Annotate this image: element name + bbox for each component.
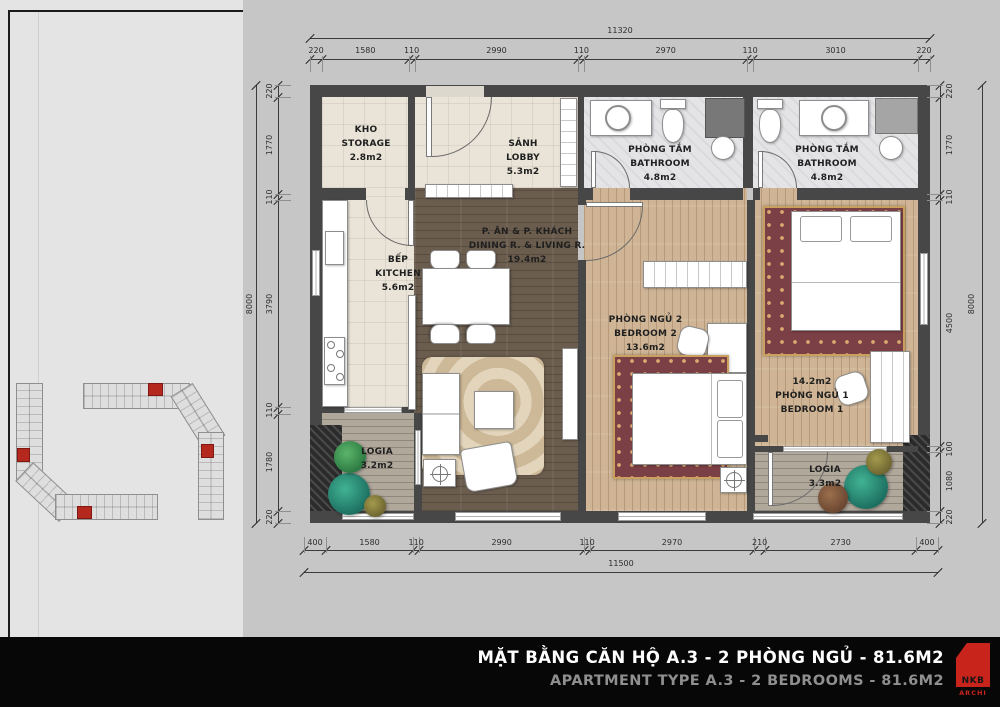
coffee-table [474, 391, 514, 429]
window-bedroom2 [618, 512, 706, 521]
wall-storage-right [408, 97, 415, 200]
unit-highlight [201, 444, 214, 458]
dim-label: 2970 [646, 46, 686, 56]
logo-shape: NKB [956, 643, 990, 687]
wardrobe [870, 351, 910, 443]
room-area: 3.3m2 [788, 477, 862, 491]
room-name-vi: KHO [324, 123, 408, 137]
dim-label: 8000 [967, 284, 977, 324]
sofa [422, 373, 460, 455]
dim-mark [278, 85, 279, 523]
wall-storage-bottom [322, 188, 366, 200]
sheet-inner-line [38, 12, 39, 637]
room-name-en: LOBBY [478, 151, 568, 165]
dim-mark [927, 97, 943, 98]
shower-icon [711, 136, 735, 160]
pillow [800, 216, 842, 242]
room-name-en: DINING R. & LIVING R. [453, 239, 601, 253]
kitchen-bar [408, 295, 416, 410]
room-area: 14.2m2 [760, 375, 864, 389]
dim-mark [275, 85, 291, 86]
burner [327, 364, 335, 372]
room-name-vi: PHÒNG NGỦ 1 [760, 389, 864, 403]
dim-mark [304, 572, 938, 573]
room-label-storage: KHO STORAGE 2.8m2 [324, 123, 408, 165]
dim-label: 1580 [345, 46, 385, 56]
kitchen-sink-icon [325, 231, 344, 265]
dim-label: 220 [904, 46, 944, 56]
dim-label: 110 [265, 390, 275, 430]
room-name-vi: PHÒNG TẮM [780, 143, 874, 157]
plan-title-vietnamese: MẶT BẰNG CĂN HỘ A.3 - 2 PHÒNG NGỦ - 81.6… [477, 648, 944, 667]
wall-bath1-bottom [630, 188, 743, 200]
dim-label: 220 [265, 497, 275, 537]
room-label-lobby: SẢNH LOBBY 5.3m2 [478, 137, 568, 179]
room-name-en: KITCHEN [358, 267, 438, 281]
room-area: 19.4m2 [453, 253, 601, 267]
room-label-bathroom-1: PHÒNG TẮM BATHROOM 4.8m2 [613, 143, 707, 185]
room-name-en: BATHROOM [613, 157, 707, 171]
dim-label: 8000 [245, 284, 255, 324]
dim-mark [927, 523, 943, 524]
room-label-bedroom-1: 14.2m2 PHÒNG NGỦ 1 BEDROOM 1 [760, 375, 864, 417]
wall-living-bedroom2 [578, 260, 586, 511]
room-area: 13.6m2 [598, 341, 693, 355]
dim-label: 1770 [265, 125, 275, 165]
room-name-vi: SẢNH [478, 137, 568, 151]
room-area: 3.2m2 [340, 459, 414, 473]
wall-lobby-right [578, 97, 584, 200]
room-name-vi: PHÒNG TẮM [613, 143, 707, 157]
dim-label: 110 [392, 46, 432, 56]
pillow [717, 420, 743, 458]
dimension-line-left: 2201770110379011017802208000 [246, 85, 292, 523]
wall-bath2-bottom [797, 188, 918, 200]
burner [327, 341, 335, 349]
sliding-door-logia1 [415, 430, 421, 485]
room-name-vi: LOGIA [788, 463, 862, 477]
pillow [850, 216, 892, 242]
dining-chair [430, 324, 460, 344]
dim-label: 110 [265, 177, 275, 217]
bed [791, 211, 901, 331]
dim-mark [927, 446, 943, 447]
key-plan [10, 378, 238, 528]
floor-plan: KHO STORAGE 2.8m2 SẢNH LOBBY 5.3m2 PHÒNG… [310, 85, 930, 523]
toilet-icon [662, 109, 684, 143]
dim-mark [275, 414, 291, 415]
bed [632, 373, 747, 465]
dim-mark [927, 85, 943, 86]
dim-mark [304, 550, 938, 551]
room-area: 2.8m2 [324, 151, 408, 165]
tv-cabinet [562, 348, 578, 440]
stove-icon [324, 337, 345, 385]
dim-mark [275, 511, 291, 512]
dimension-line-bottom: 400158011029901102970210273040011500 [304, 536, 938, 584]
dim-label: 2970 [652, 538, 692, 548]
dim-label: 2730 [821, 538, 861, 548]
room-name-en: BATHROOM [780, 157, 874, 171]
duct-box [875, 98, 918, 134]
room-area: 4.8m2 [780, 171, 874, 185]
dim-mark [753, 56, 754, 72]
room-label-dining-living: P. ĂN & P. KHÁCH DINING R. & LIVING R. 1… [453, 225, 601, 267]
logo-text: NKB [956, 676, 990, 686]
dim-mark [275, 194, 291, 195]
room-label-logia-1: LOGIA 3.2m2 [340, 445, 414, 473]
sheet-frame-line [8, 10, 243, 12]
room-name-vi: BẾP [358, 253, 438, 267]
logia2-railing [753, 513, 903, 520]
toilet-tank-icon [660, 99, 686, 109]
dim-label: 1580 [350, 538, 390, 548]
room-area: 5.6m2 [358, 281, 438, 295]
lamp-icon [432, 466, 448, 482]
shoe-cabinet [425, 184, 513, 198]
adjacent-sheet [0, 0, 243, 637]
dim-mark [275, 523, 291, 524]
dim-mark [927, 194, 943, 195]
dim-label: 110 [945, 177, 955, 217]
dim-mark [927, 452, 943, 453]
room-name-en: BEDROOM 2 [598, 327, 693, 341]
room-area: 4.8m2 [613, 171, 707, 185]
toilet-tank-icon [757, 99, 783, 109]
dim-mark [747, 56, 748, 72]
toilet-icon [759, 109, 781, 143]
dim-mark [275, 200, 291, 201]
dim-label: 4500 [945, 303, 955, 343]
dim-mark [256, 85, 257, 523]
window-kitchen [312, 250, 320, 296]
dim-mark [927, 200, 943, 201]
dim-label: 1780 [265, 442, 275, 482]
sink-icon [821, 105, 847, 131]
window-living [455, 512, 561, 521]
room-name-vi: P. ĂN & P. KHÁCH [453, 225, 601, 239]
burner [336, 373, 344, 381]
logo-subtext: ARCHI [956, 689, 990, 697]
wall-living-bedroom2 [578, 200, 586, 205]
dim-mark [275, 407, 291, 408]
pillow [717, 380, 743, 418]
window [344, 407, 402, 413]
plant-icon [866, 449, 892, 475]
dim-label: 1080 [945, 461, 955, 501]
blanket-line [792, 282, 900, 283]
dim-label: 11500 [304, 559, 938, 569]
dim-label: 220 [296, 46, 336, 56]
lamp-icon [726, 472, 742, 488]
wall-bath2-bottom [753, 188, 760, 200]
dim-label: 1770 [945, 125, 955, 165]
dim-mark [409, 56, 410, 72]
shower-icon [879, 136, 903, 160]
title-bar: MẶT BẰNG CĂN HỘ A.3 - 2 PHÒNG NGỦ - 81.6… [0, 637, 1000, 707]
dim-label: 3010 [816, 46, 856, 56]
dim-label: 110 [730, 46, 770, 56]
window-bedroom1 [920, 253, 928, 325]
plan-title-english: APARTMENT TYPE A.3 - 2 BEDROOMS - 81.6M2 [550, 673, 944, 689]
unit-highlight [148, 383, 163, 396]
burner [336, 350, 344, 358]
dim-mark [310, 56, 311, 72]
dining-chair [466, 324, 496, 344]
blanket-line [711, 374, 712, 464]
dimension-line-top: 220158011029901102970110301022011320 [310, 24, 930, 82]
dim-mark [415, 56, 416, 72]
dim-mark [982, 85, 983, 523]
dim-mark [940, 85, 941, 523]
nightstand [720, 467, 747, 493]
dim-label: 110 [561, 46, 601, 56]
dim-label: 220 [945, 497, 955, 537]
dim-mark [918, 56, 919, 72]
key-plan-bottom-wing [55, 494, 158, 520]
dim-mark [275, 97, 291, 98]
dim-mark [584, 56, 585, 72]
room-label-bedroom-2: PHÒNG NGỦ 2 BEDROOM 2 13.6m2 [598, 313, 693, 355]
wardrobe [643, 261, 747, 288]
room-area: 5.3m2 [478, 165, 568, 179]
wall-bedroom-divider [747, 200, 755, 511]
dim-label: 2990 [482, 538, 522, 548]
wall-top [310, 85, 930, 97]
room-name-vi: PHÒNG NGỦ 2 [598, 313, 693, 327]
sheet-frame-line [8, 10, 10, 637]
dim-label: 2990 [476, 46, 516, 56]
room-name-en: STORAGE [324, 137, 408, 151]
room-label-kitchen: BẾP KITCHEN 5.6m2 [358, 253, 438, 295]
dim-mark [927, 511, 943, 512]
side-table [423, 459, 456, 487]
plant-icon [364, 495, 386, 517]
entrance-opening [426, 86, 484, 97]
wall-bath1-bottom [584, 188, 593, 200]
dim-label: 210 [740, 538, 780, 548]
dim-mark [310, 59, 930, 60]
dim-label: 400 [907, 538, 947, 548]
dim-label: 3790 [265, 284, 275, 324]
room-label-logia-2: LOGIA 3.3m2 [788, 463, 862, 491]
dim-label: 400 [295, 538, 335, 548]
unit-highlight [77, 506, 92, 519]
dim-label: 220 [945, 71, 955, 111]
wall-storage-bottom [405, 188, 415, 200]
room-label-bathroom-2: PHÒNG TẮM BATHROOM 4.8m2 [780, 143, 874, 185]
dim-label: 11320 [310, 26, 930, 36]
dim-mark [322, 56, 323, 72]
dimension-line-right: 2201770110450010010802208000 [936, 85, 988, 523]
unit-highlight [17, 448, 30, 462]
room-name-en: BEDROOM 1 [760, 403, 864, 417]
company-logo: NKB ARCHI [952, 642, 994, 702]
duct-box [705, 98, 745, 138]
dim-mark [930, 56, 931, 72]
armchair [460, 441, 519, 493]
dim-label: 110 [567, 538, 607, 548]
sink-icon [605, 105, 631, 131]
dim-label: 220 [265, 71, 275, 111]
dim-label: 110 [396, 538, 436, 548]
wall-stub [755, 435, 768, 442]
room-name-vi: LOGIA [340, 445, 414, 459]
dim-mark [310, 38, 930, 39]
